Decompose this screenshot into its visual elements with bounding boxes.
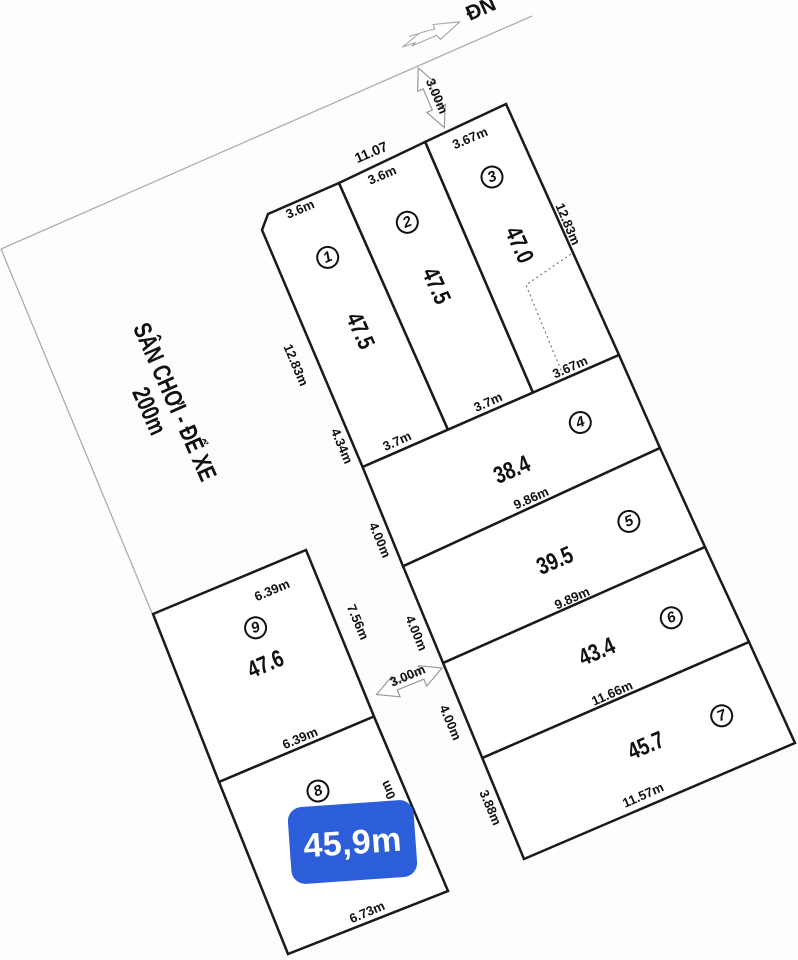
- svg-text:45,9m: 45,9m: [302, 821, 403, 866]
